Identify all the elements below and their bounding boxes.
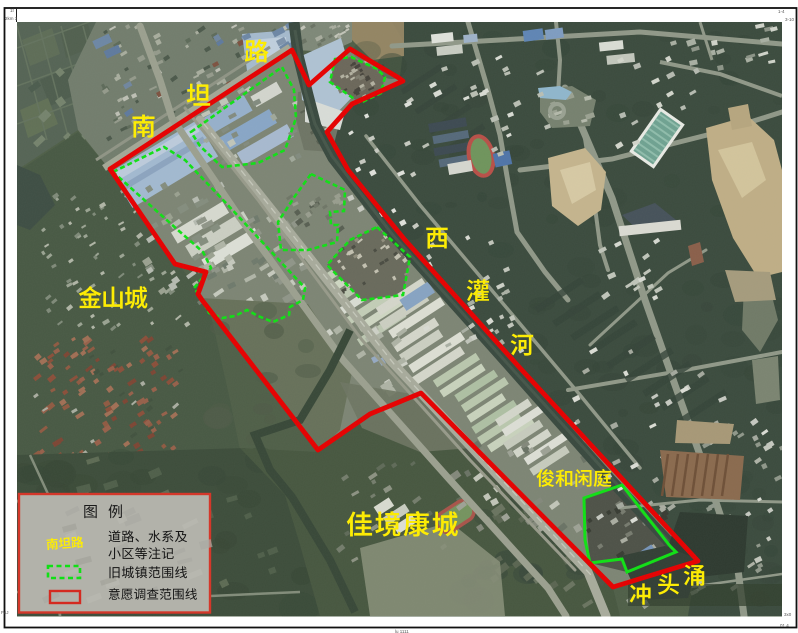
- svg-text:3x0: 3x0: [784, 612, 792, 617]
- svg-text:1-4: 1-4: [778, 9, 785, 14]
- svg-text:2km 3: 2km 3: [5, 16, 18, 21]
- svg-text:3-10: 3-10: [785, 17, 795, 22]
- svg-text:01 4: 01 4: [780, 623, 789, 628]
- svg-text:F4J: F4J: [1, 610, 9, 615]
- svg-text:lu 1111: lu 1111: [395, 629, 409, 633]
